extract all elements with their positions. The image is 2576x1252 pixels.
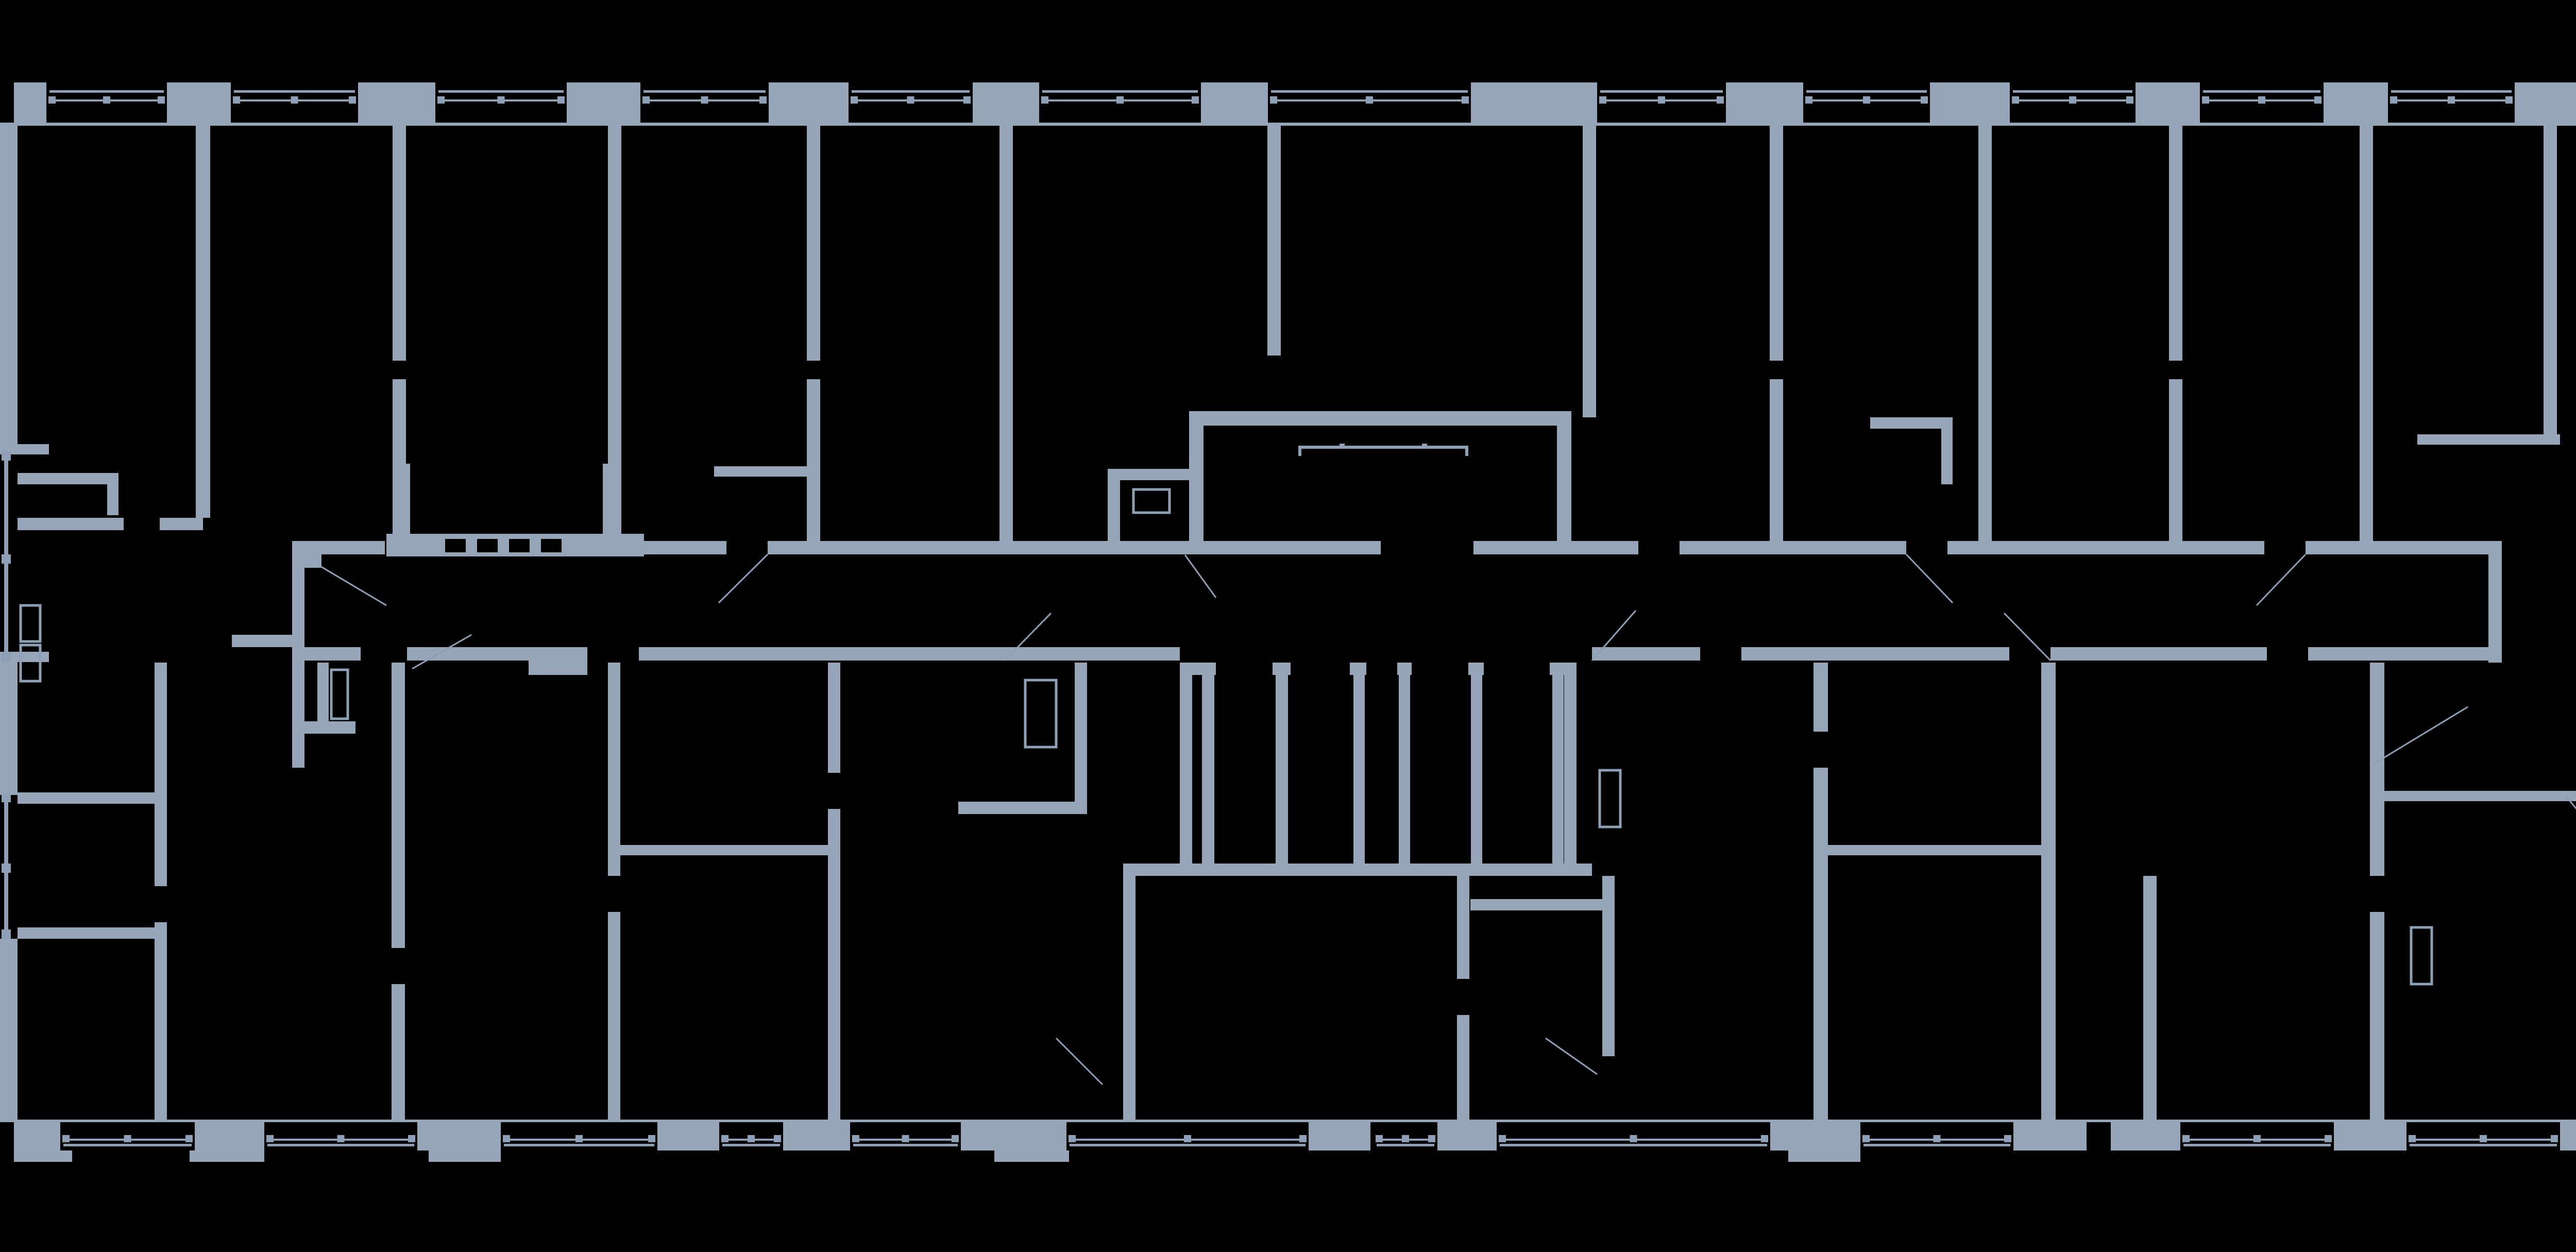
bottom-window-glazing-line <box>1500 1144 1767 1146</box>
wall <box>1552 675 1564 866</box>
wall <box>0 939 18 1122</box>
bottom-window-mullion-square <box>774 1135 781 1142</box>
window-square <box>1340 444 1345 449</box>
bottom-window-mullion-square <box>721 1135 728 1142</box>
wall <box>1471 675 1482 866</box>
top-window-mullion-square <box>1863 96 1870 104</box>
wall <box>2370 663 2384 876</box>
wall <box>1770 126 1783 361</box>
wall <box>1350 663 1366 675</box>
wall <box>1202 675 1214 866</box>
wall <box>0 662 18 795</box>
bottom-window-mullion-square <box>2182 1135 2190 1142</box>
bottom-pier-foot <box>1788 1151 1860 1162</box>
wall <box>1189 411 1571 426</box>
wall <box>1123 876 1136 1120</box>
wall <box>1564 663 1577 876</box>
top-window-mullion-square <box>1116 96 1124 104</box>
wall <box>1399 675 1410 866</box>
bottom-window-mullion-square <box>1428 1135 1435 1142</box>
bottom-window-mullion-square <box>2325 1135 2332 1142</box>
bottom-facade-inner-line <box>0 1120 2576 1122</box>
wall <box>608 663 620 876</box>
bottom-window-mullion-square <box>1862 1135 1870 1142</box>
top-window-mullion-square <box>759 96 767 104</box>
window-square <box>2 929 11 939</box>
floor-plan-page <box>0 0 2576 1252</box>
bottom-window-glazing-line <box>853 1144 958 1146</box>
top-window-mullion-square <box>1462 96 1469 104</box>
top-window-glazing-line <box>643 90 766 93</box>
bottom-facade-pier <box>2560 1120 2576 1151</box>
wall <box>2050 647 2267 661</box>
wall <box>160 518 203 530</box>
wall <box>1870 417 1953 429</box>
bottom-window-mullion-square <box>62 1135 70 1142</box>
top-window-mullion-square <box>349 96 356 104</box>
bottom-window-mullion-square <box>1499 1135 1506 1142</box>
wall <box>1741 647 2009 661</box>
wall <box>958 802 1087 814</box>
bottom-window-mullion-square <box>852 1135 859 1142</box>
wall <box>807 126 820 361</box>
bottom-window-mullion-square <box>1761 1135 1768 1142</box>
wall <box>2308 647 2488 661</box>
window-square <box>2 864 11 873</box>
wall <box>2041 663 2056 1120</box>
bottom-window-glazing-line <box>2183 1144 2331 1146</box>
top-window-mullion-square <box>1805 96 1812 104</box>
bottom-window-glazing-line <box>1377 1144 1434 1146</box>
top-window-glazing-line <box>2203 90 2320 93</box>
top-window-mullion-square <box>1599 96 1606 104</box>
top-window-mullion-square <box>498 96 505 104</box>
bottom-window-mullion-square <box>1630 1135 1637 1142</box>
bottom-window-glazing-line <box>1070 1144 1306 1146</box>
top-window-mullion-square <box>1717 96 1724 104</box>
background <box>0 0 2576 1252</box>
bottom-window-mullion-square <box>902 1135 909 1142</box>
wall <box>155 922 167 1120</box>
wall <box>529 661 587 675</box>
bottom-facade-pier <box>783 1120 850 1151</box>
top-window-mullion-square <box>2126 96 2133 104</box>
wall <box>1557 411 1571 554</box>
bottom-facade-pier <box>657 1120 719 1151</box>
wall <box>1457 876 1469 979</box>
counter-notch <box>541 539 562 552</box>
top-facade-pier <box>2136 82 2200 123</box>
window-square <box>2 451 11 461</box>
window-square <box>1422 444 1427 449</box>
bottom-window-mullion-square <box>337 1135 345 1142</box>
wall <box>18 792 155 804</box>
wall <box>1680 541 1906 554</box>
bottom-pier-foot <box>190 1151 264 1162</box>
top-window-glazing-line <box>2391 90 2512 93</box>
top-facade-pier <box>769 82 849 123</box>
top-window-mullion-square <box>2448 96 2455 104</box>
wall <box>1276 675 1288 866</box>
wall <box>1267 126 1281 356</box>
wall <box>292 541 304 768</box>
bottom-facade-pier <box>2111 1120 2180 1151</box>
thin-line <box>1465 446 1468 456</box>
bottom-pier-foot <box>14 1151 72 1162</box>
wall <box>1814 768 1828 1120</box>
bottom-window-mullion-square <box>266 1135 274 1142</box>
top-window-glazing-line <box>49 90 164 93</box>
wall <box>1770 379 1783 541</box>
wall <box>18 927 155 939</box>
wall <box>1353 675 1365 866</box>
top-window-mullion-square <box>2258 96 2265 104</box>
top-window-glazing-line <box>438 90 564 93</box>
window-square <box>2 653 11 662</box>
bottom-window-mullion-square <box>952 1135 959 1142</box>
bottom-facade-pier <box>1770 1120 1860 1151</box>
top-facade-pier <box>14 82 46 123</box>
bottom-window-mullion-square <box>2480 1135 2487 1142</box>
wall <box>2417 434 2560 445</box>
wall <box>2384 791 2576 801</box>
wall <box>2143 876 2157 1120</box>
wall <box>1470 899 1602 910</box>
wall <box>768 541 1189 554</box>
top-facade-pier <box>358 82 435 123</box>
wall <box>999 126 1013 541</box>
wall <box>1828 845 2041 855</box>
wall <box>0 123 18 453</box>
bottom-facade-pier <box>417 1120 501 1151</box>
top-window-glazing-line <box>1600 90 1723 93</box>
bottom-facade-pier <box>195 1120 264 1151</box>
top-window-mullion-square <box>557 96 565 104</box>
bottom-window-mullion-square <box>1376 1135 1383 1142</box>
top-facade-pier <box>2324 82 2388 123</box>
top-window-mullion-square <box>963 96 971 104</box>
wall <box>1273 663 1291 675</box>
wall <box>608 912 620 1120</box>
bottom-window-glazing-line <box>1863 1144 2010 1146</box>
wall <box>641 541 726 554</box>
bottom-facade-pier <box>1309 1120 1370 1151</box>
top-window-mullion-square <box>2390 96 2397 104</box>
top-window-glazing-line <box>2013 90 2132 93</box>
bottom-window-mullion-square <box>408 1135 415 1142</box>
bottom-window-glazing-line <box>504 1144 654 1146</box>
top-window-mullion-square <box>2505 96 2513 104</box>
top-window-glazing-line <box>1806 90 1927 93</box>
wall <box>1592 647 1700 661</box>
wall <box>2169 379 2182 541</box>
wall <box>155 663 167 886</box>
top-window-mullion-square <box>291 96 298 104</box>
top-window-glazing-line <box>1042 90 1198 93</box>
top-window-mullion-square <box>233 96 240 104</box>
top-facade-pier <box>1930 82 2010 123</box>
wall <box>1397 663 1412 675</box>
wall <box>1189 541 1381 554</box>
top-window-mullion-square <box>2012 96 2019 104</box>
bottom-window-mullion-square <box>748 1135 755 1142</box>
bottom-window-mullion-square <box>2004 1135 2011 1142</box>
wall <box>639 647 1180 661</box>
bottom-window-mullion-square <box>1184 1135 1191 1142</box>
bottom-pier-foot <box>994 1151 1069 1162</box>
top-window-mullion-square <box>907 96 914 104</box>
bottom-window-mullion-square <box>2551 1135 2558 1142</box>
bottom-window-mullion-square <box>185 1135 193 1142</box>
bottom-window-glazing-line <box>63 1144 192 1146</box>
wall <box>1123 864 1592 876</box>
wall <box>828 809 840 1120</box>
wall <box>1180 663 1192 876</box>
bottom-window-mullion-square <box>1402 1135 1409 1142</box>
top-window-mullion-square <box>437 96 445 104</box>
top-window-mullion-square <box>2069 96 2076 104</box>
wall <box>196 126 210 518</box>
wall <box>1075 663 1087 814</box>
top-window-mullion-square <box>1921 96 1928 104</box>
top-window-mullion-square <box>158 96 165 104</box>
wall <box>18 518 124 530</box>
bottom-window-mullion-square <box>1299 1135 1307 1142</box>
top-facade-inner-line <box>0 123 2576 126</box>
window-square <box>2 793 11 802</box>
wall <box>407 647 587 661</box>
top-facade-pier <box>167 82 231 123</box>
bottom-window-mullion-square <box>1934 1135 1941 1142</box>
bottom-facade-pier <box>14 1120 60 1151</box>
bottom-pier-foot <box>429 1151 501 1162</box>
wall <box>2544 126 2557 438</box>
wall <box>1978 126 1992 541</box>
wall <box>2488 541 2502 663</box>
counter-notch <box>509 539 530 552</box>
bottom-window-mullion-square <box>1069 1135 1076 1142</box>
bottom-window-mullion-square <box>124 1135 131 1142</box>
thin-line <box>1298 446 1301 456</box>
top-window-mullion-square <box>2202 96 2209 104</box>
wall <box>714 466 807 477</box>
window-square <box>2 554 11 564</box>
wall <box>1814 663 1828 732</box>
top-window-mullion-square <box>642 96 650 104</box>
wall <box>620 845 828 855</box>
top-window-mullion-square <box>1192 96 1199 104</box>
top-window-mullion-square <box>851 96 858 104</box>
wall <box>1473 541 1638 554</box>
top-window-mullion-square <box>103 96 110 104</box>
top-window-glazing-line <box>1271 90 1468 93</box>
wall <box>1468 663 1484 675</box>
wall <box>2370 912 2384 1120</box>
counter-notch <box>445 539 466 552</box>
bottom-facade-pier <box>1437 1120 1497 1151</box>
top-window-mullion-square <box>1270 96 1277 104</box>
bottom-window-glazing-line <box>722 1144 780 1146</box>
bottom-window-mullion-square <box>503 1135 510 1142</box>
bottom-window-mullion-square <box>2253 1135 2261 1142</box>
wall <box>304 647 361 661</box>
bottom-window-glazing-line <box>267 1144 414 1146</box>
bottom-window-mullion-square <box>2409 1135 2416 1142</box>
bottom-window-mullion-square <box>575 1135 583 1142</box>
wall <box>2306 541 2488 554</box>
top-facade-pier <box>2515 82 2576 123</box>
bottom-window-glazing-line <box>2410 1144 2557 1146</box>
top-window-mullion-square <box>48 96 56 104</box>
wall <box>807 379 820 541</box>
bottom-window-mullion-square <box>648 1135 655 1142</box>
wall <box>828 663 840 773</box>
wall <box>1941 417 1953 484</box>
top-window-glazing-line <box>852 90 970 93</box>
wall <box>304 721 355 734</box>
top-window-mullion-square <box>701 96 708 104</box>
wall <box>317 663 329 732</box>
counter-notch <box>477 539 498 552</box>
wall <box>2169 126 2182 361</box>
top-window-mullion-square <box>1041 96 1048 104</box>
floor-plan-canvas <box>0 0 2576 1252</box>
top-facade-pier <box>1471 82 1597 123</box>
wall <box>1583 126 1596 417</box>
top-window-mullion-square <box>1658 96 1665 104</box>
wall <box>1108 469 1189 480</box>
top-facade-pier <box>567 82 640 123</box>
thin-line <box>1298 446 1468 449</box>
top-facade-pier <box>1726 82 1803 123</box>
wall <box>392 984 405 1120</box>
wall <box>399 464 410 534</box>
wall <box>1189 411 1204 554</box>
wall <box>18 473 118 484</box>
wall <box>603 464 614 534</box>
wall <box>392 663 405 948</box>
wall <box>107 473 118 515</box>
top-window-mullion-square <box>1366 96 1373 104</box>
wall <box>393 126 406 361</box>
wall <box>2360 126 2373 541</box>
top-facade-pier <box>973 82 1039 123</box>
bottom-facade-pier <box>961 1120 1066 1151</box>
bottom-facade-pier <box>2334 1120 2406 1151</box>
wall <box>1602 876 1615 1056</box>
top-window-mullion-square <box>2314 96 2321 104</box>
wall <box>1457 1015 1469 1120</box>
bottom-facade-pier <box>2013 1120 2087 1151</box>
wall <box>1947 541 2264 554</box>
top-facade-pier <box>1201 82 1268 123</box>
top-window-glazing-line <box>234 90 355 93</box>
